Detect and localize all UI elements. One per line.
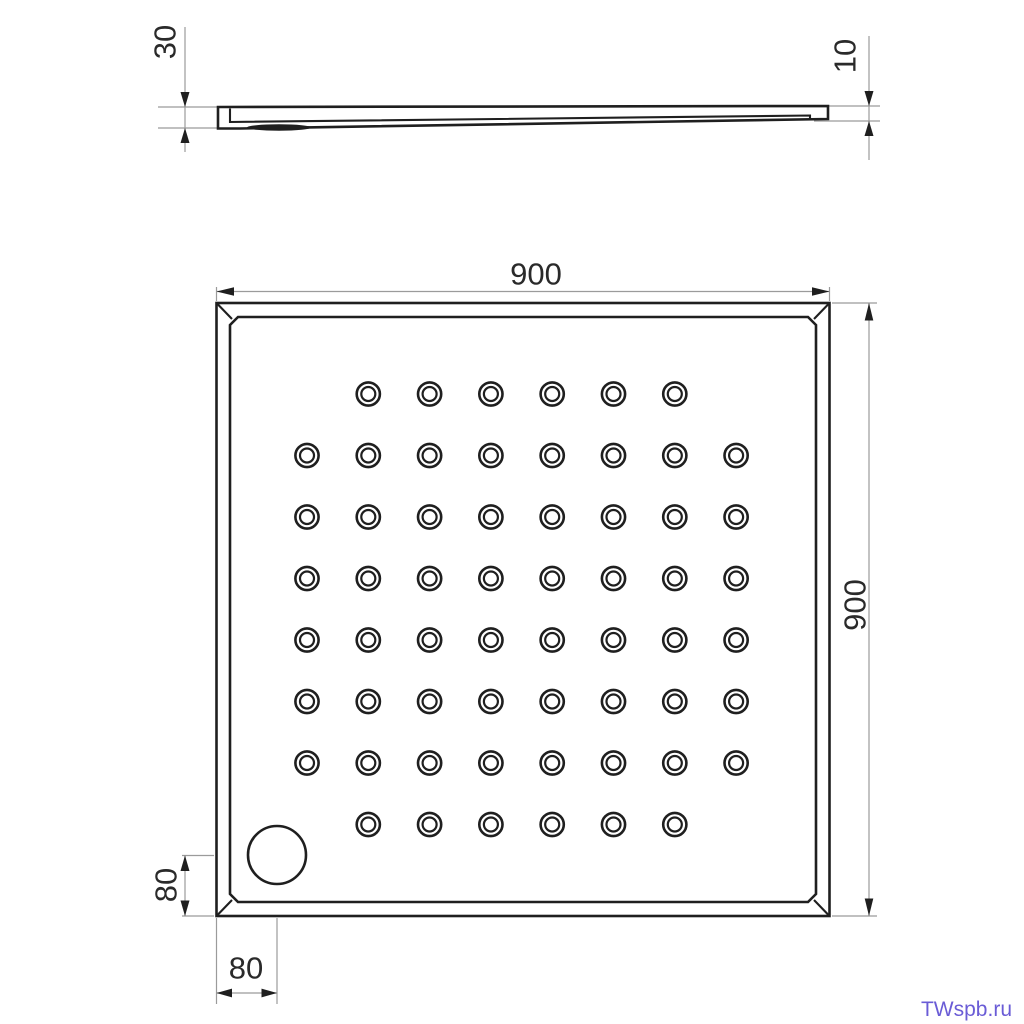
arrowhead-up-icon [865,303,874,321]
arrowhead-right-icon [812,287,830,296]
arrowhead-down-icon [181,92,190,107]
dimension-30: 30 [148,25,190,152]
site-watermark: TWspb.ru [921,998,1012,1021]
arrowhead-left-icon [217,989,233,998]
dimension-label-30: 30 [148,25,183,59]
arrowhead-up-icon [181,128,190,143]
shower-tray-technical-drawing: 30 10 900 [0,0,1024,1024]
arrowhead-down-icon [865,91,874,106]
dimension-label-900-width: 900 [510,257,562,292]
side-view: 30 10 [148,25,881,160]
dimension-label-80-left: 80 [149,868,184,902]
arrowhead-left-icon [217,287,235,296]
dimension-80-left: 80 [149,856,215,917]
drain-hole [248,826,306,884]
dimension-80-bottom: 80 [217,918,278,1004]
tray-outer-edge [217,303,830,916]
dimension-900-width: 900 [217,257,830,302]
dimension-label-80-bottom: 80 [229,951,263,986]
drain-trap-profile [247,124,311,130]
dimension-label-900-depth: 900 [838,579,873,631]
dimension-900-depth: 900 [832,303,877,916]
arrowhead-right-icon [262,989,278,998]
dimension-10: 10 [828,36,874,160]
arrowhead-up-icon [865,121,874,136]
dimension-label-10: 10 [828,39,863,73]
top-view: 900 900 80 80 [149,257,878,1005]
arrowhead-down-icon [865,899,874,917]
